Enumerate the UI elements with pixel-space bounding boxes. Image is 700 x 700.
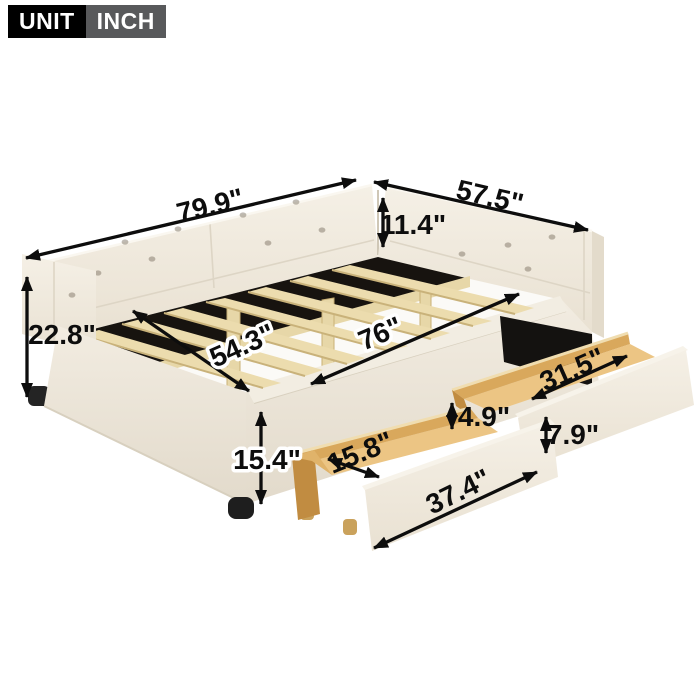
unit-badge-value: INCH: [86, 5, 166, 38]
unit-badge: UNIT INCH: [8, 5, 166, 38]
unit-badge-label: UNIT: [8, 5, 86, 38]
dimension-side-height-label: 22.8": [28, 319, 96, 350]
dimension-back-height-label: 11.4": [380, 209, 446, 240]
dimension-drawer-front-height-label: 7.9": [547, 419, 599, 450]
drawer-left-foot-2: [343, 519, 357, 535]
dimension-base-height-label: 15.4": [233, 444, 301, 475]
tuft-button-left-arm: [69, 292, 76, 297]
product-dimension-diagram: UNIT INCH: [0, 0, 700, 700]
dimension-drawer-front-height: 7.9": [546, 417, 599, 453]
dimension-drawer-depth: 4.9": [452, 401, 510, 432]
bed-leg-front: [228, 497, 254, 519]
right-arm-outer-side: [592, 231, 604, 338]
dimension-drawer-depth-label: 4.9": [458, 401, 510, 432]
daybed-illustration: 79.9" 57.5" 11.4" 22.8" 54.3" 76" 15.4": [0, 0, 700, 700]
